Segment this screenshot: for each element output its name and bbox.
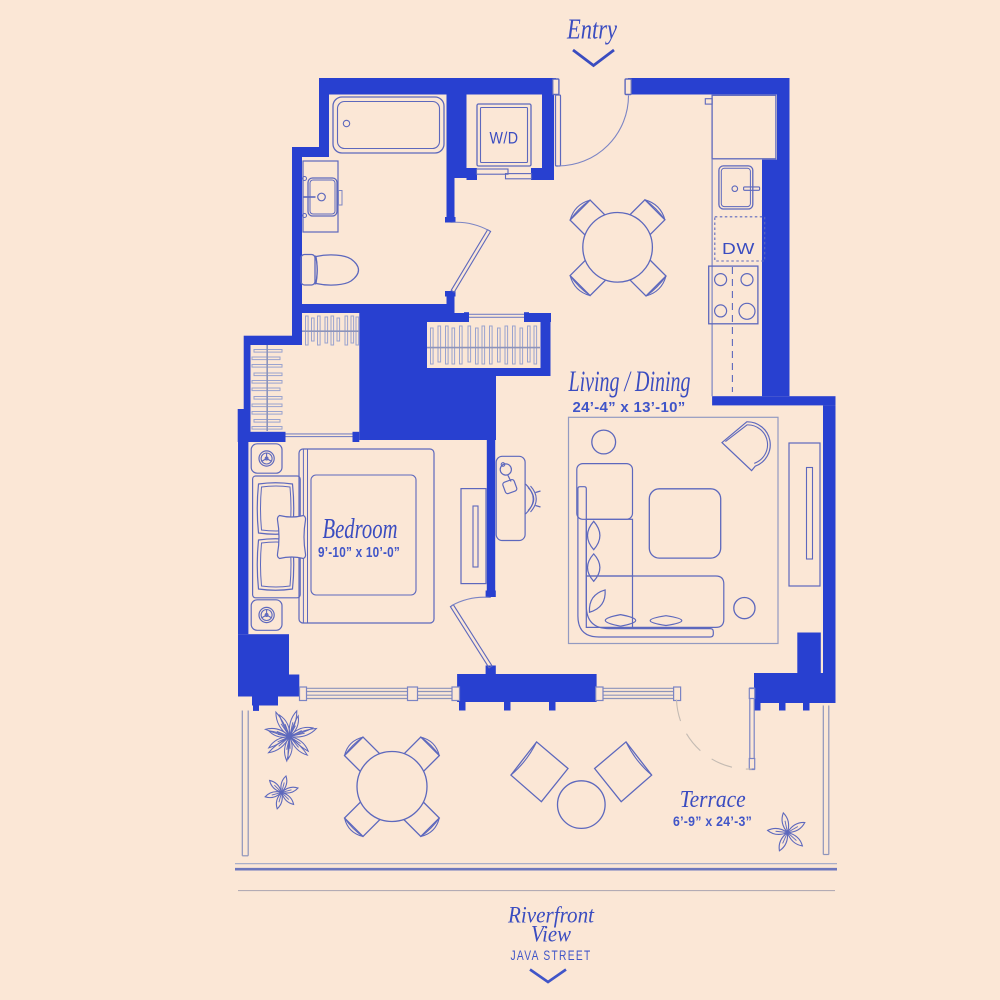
svg-text:Living / Dining: Living / Dining <box>568 365 691 398</box>
svg-text:DW: DW <box>722 241 755 258</box>
svg-text:View: View <box>531 922 572 947</box>
svg-text:Entry: Entry <box>566 14 617 46</box>
svg-text:JAVA STREET: JAVA STREET <box>511 947 592 963</box>
svg-text:24’-4” x 13’-10”: 24’-4” x 13’-10” <box>573 399 686 416</box>
svg-text:Bedroom: Bedroom <box>323 513 398 545</box>
svg-text:6’-9” x 24’-3”: 6’-9” x 24’-3” <box>673 814 752 829</box>
svg-text:W/D: W/D <box>490 130 519 148</box>
svg-text:9’-10” x 10’-0”: 9’-10” x 10’-0” <box>318 544 400 561</box>
svg-text:Terrace: Terrace <box>680 787 746 813</box>
